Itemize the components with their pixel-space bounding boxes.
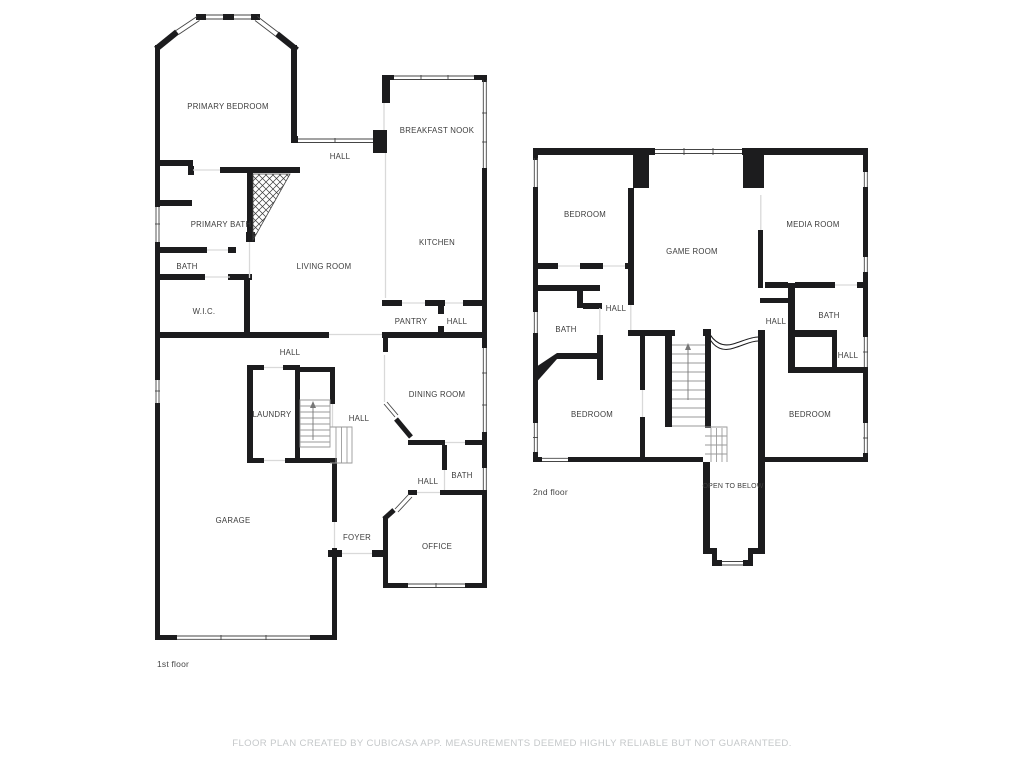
room-label-office: OFFICE	[422, 542, 452, 551]
room-label-hall-lower: HALL	[418, 477, 439, 486]
room-label-kitchen: KITCHEN	[419, 238, 455, 247]
room-label-bedroom-tl: BEDROOM	[564, 210, 606, 219]
floorplan-canvas: PRIMARY BEDROOM HALL BREAKFAST NOOK PRIM…	[0, 0, 1024, 768]
room-label-bedroom-bl: BEDROOM	[571, 410, 613, 419]
room-label-wic: W.I.C.	[193, 307, 216, 316]
floor1-label: 1st floor	[157, 659, 189, 669]
room-label-media-room: MEDIA ROOM	[786, 220, 839, 229]
room-label-garage: GARAGE	[216, 516, 251, 525]
room-label-breakfast-nook: BREAKFAST NOOK	[400, 126, 475, 135]
floorplan-page: PRIMARY BEDROOM HALL BREAKFAST NOOK PRIM…	[0, 0, 1024, 768]
room-label-laundry: LAUNDRY	[253, 410, 292, 419]
room-label-bath-right: BATH	[818, 311, 839, 320]
room-label-open-to-below: OPEN TO BELOW	[702, 483, 763, 490]
floor1-plan: PRIMARY BEDROOM HALL BREAKFAST NOOK PRIM…	[155, 14, 487, 669]
floor2-label: 2nd floor	[533, 487, 568, 497]
room-label-foyer: FOYER	[343, 533, 371, 542]
room-label-hall-center: HALL	[280, 348, 301, 357]
room-label-game-room: GAME ROOM	[666, 247, 718, 256]
room-label-hall-top: HALL	[330, 152, 351, 161]
room-label-bedroom-br: BEDROOM	[789, 410, 831, 419]
room-label-hall-right-upper: HALL	[766, 317, 787, 326]
room-label-hall-stairs: HALL	[349, 414, 370, 423]
room-label-pantry: PANTRY	[395, 317, 428, 326]
room-label-primary-bedroom: PRIMARY BEDROOM	[187, 102, 268, 111]
room-label-hall-pantry: HALL	[447, 317, 468, 326]
room-label-hall-left: HALL	[606, 304, 627, 313]
footer-disclaimer: FLOOR PLAN CREATED BY CUBICASA APP. MEAS…	[232, 738, 791, 749]
room-label-living-room: LIVING ROOM	[297, 262, 352, 271]
room-label-bath-left: BATH	[555, 325, 576, 334]
floor2-stairs	[672, 343, 727, 462]
room-label-hall-right-lower: HALL	[838, 351, 859, 360]
room-label-primary-bath: PRIMARY BATH	[191, 220, 252, 229]
floor1-stairs	[253, 174, 352, 463]
floor2-plan: BEDROOM GAME ROOM MEDIA ROOM HALL BATH H…	[533, 148, 868, 566]
room-label-dining-room: DINING ROOM	[409, 390, 465, 399]
room-label-bath: BATH	[176, 262, 197, 271]
room-label-bath-lower: BATH	[451, 471, 472, 480]
